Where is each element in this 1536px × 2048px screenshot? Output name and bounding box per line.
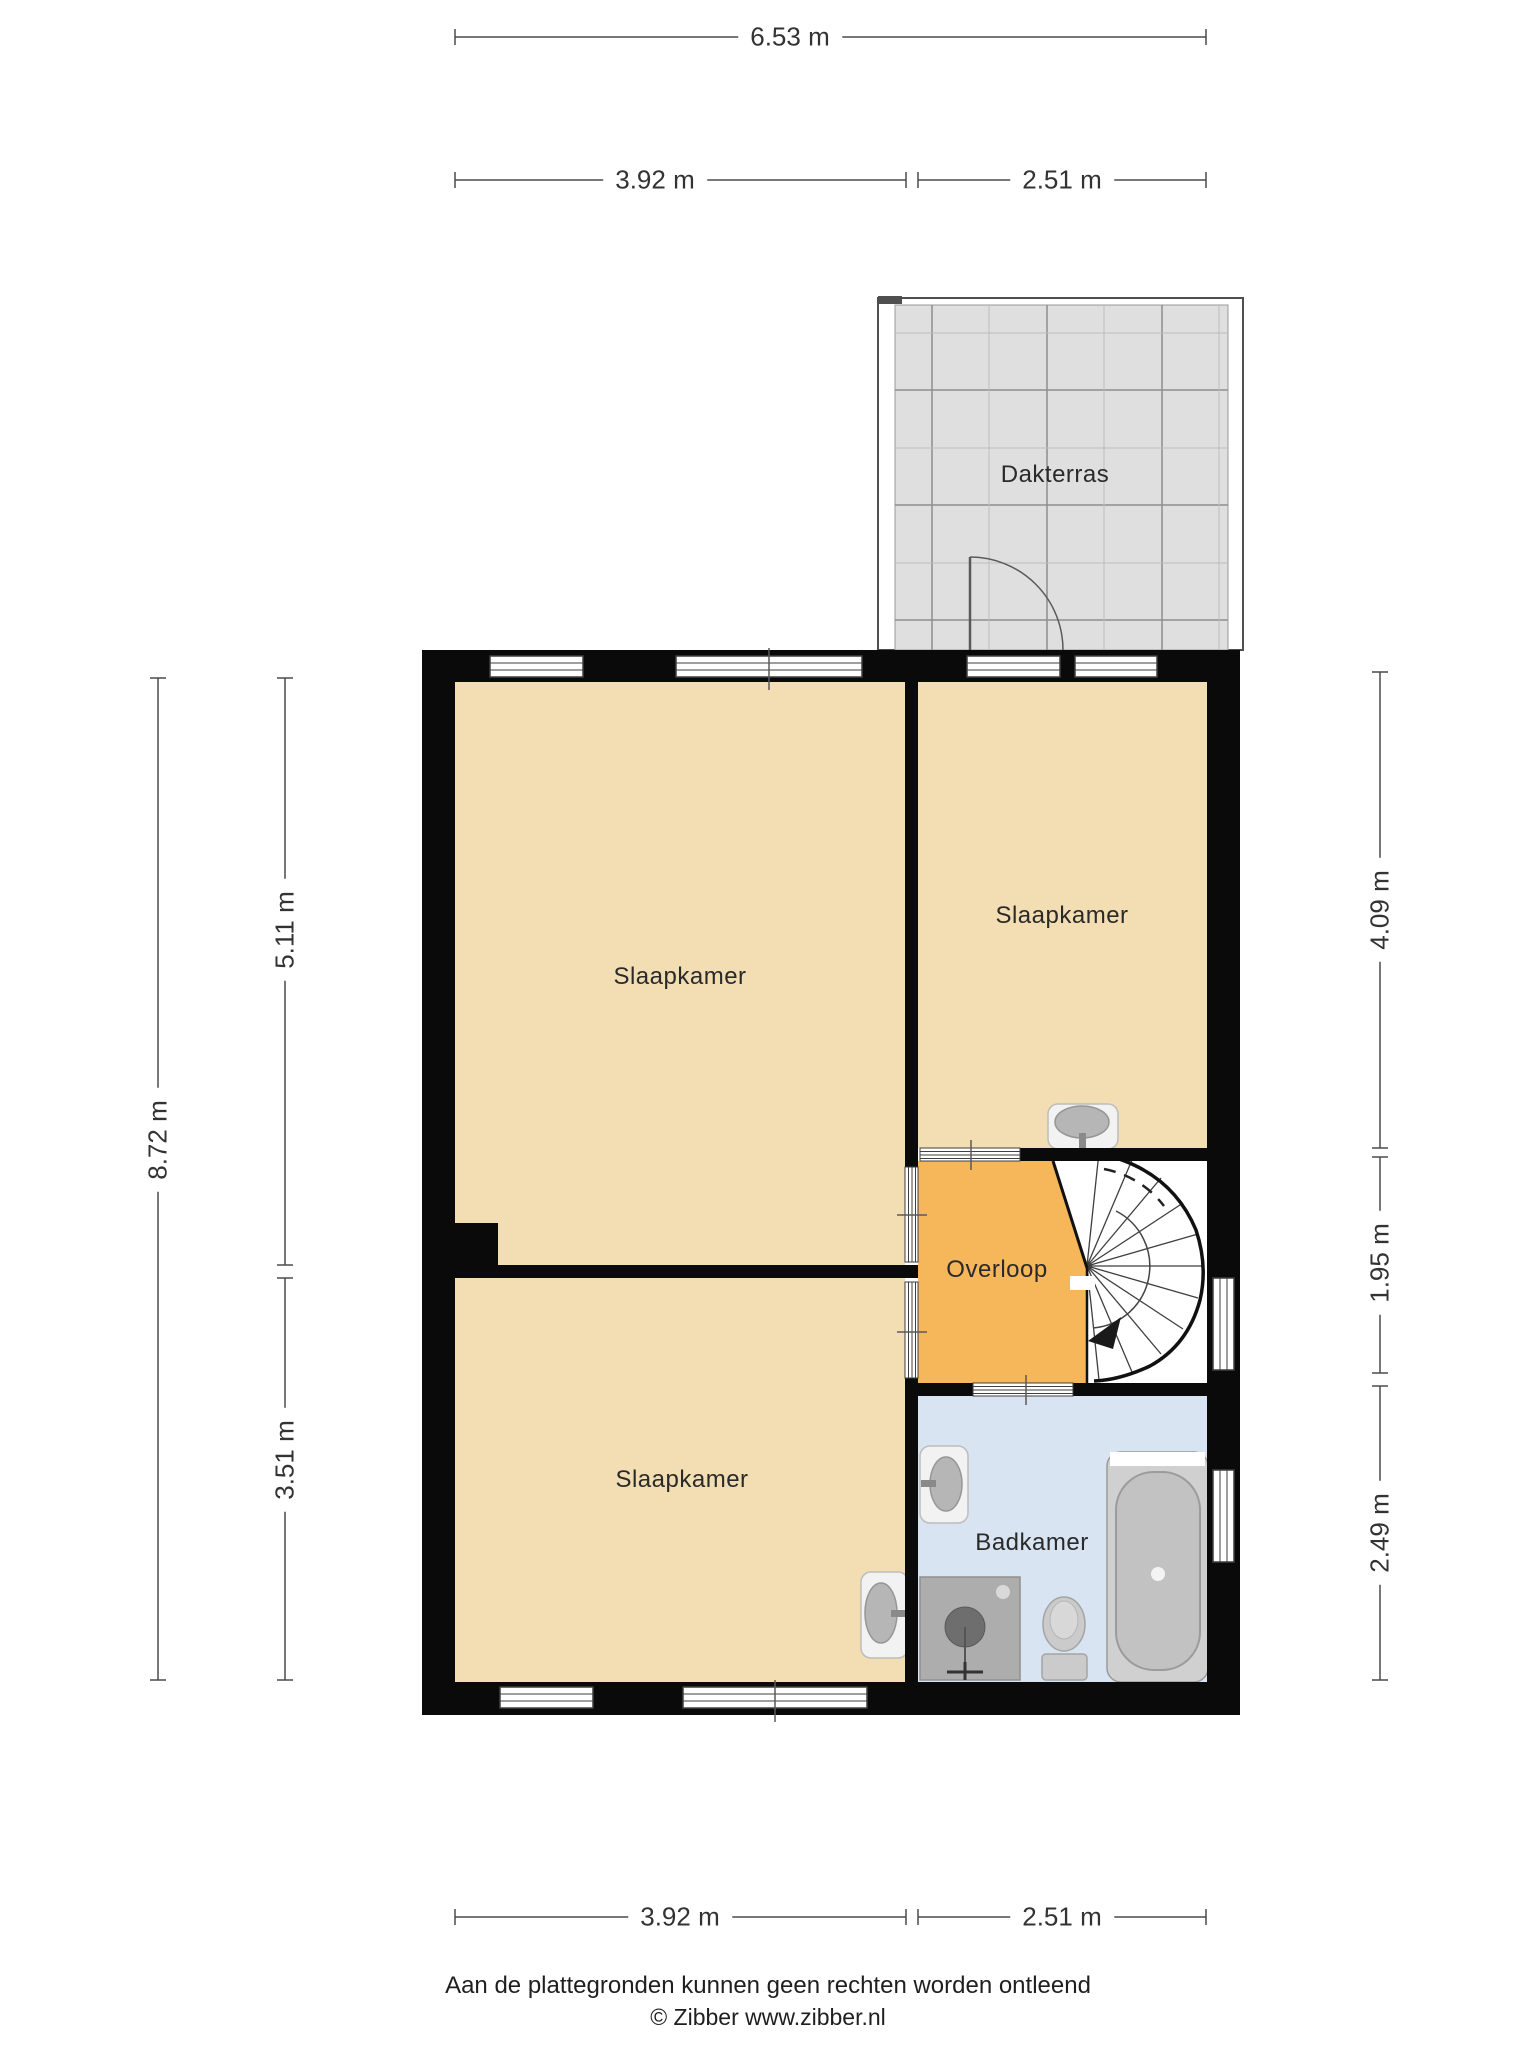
sink-bedroom-right: [1048, 1104, 1118, 1149]
room-label-overloop: Overloop: [946, 1256, 1047, 1284]
dim-bottom-right: 2.51 m: [1010, 1902, 1114, 1933]
wall-pillar: [455, 1223, 498, 1265]
toilet: [1042, 1597, 1087, 1680]
wall-badkamer-left: [905, 1396, 918, 1682]
room-floors: [455, 682, 1207, 1682]
wall-bedroom2-bottom: [1020, 1148, 1207, 1161]
window: [490, 656, 583, 677]
dim-top-right: 2.51 m: [1010, 165, 1114, 196]
dim-right-middle: 1.95 m: [1365, 1211, 1396, 1315]
wall-stub: [905, 1378, 918, 1397]
terrace-corner-stub: [878, 296, 902, 304]
floorplan-page: Dakterras Slaapkamer Slaapkamer Overloop…: [0, 0, 1536, 2048]
dim-left-upper: 5.11 m: [270, 879, 301, 981]
window: [1213, 1470, 1234, 1562]
wall-stub: [905, 1148, 918, 1167]
terrace-glass-door: [967, 656, 1060, 677]
dim-top-total: 6.53 m: [738, 22, 842, 53]
dim-right-lower: 2.49 m: [1365, 1481, 1396, 1585]
room-label-slaapkamer-2: Slaapkamer: [995, 902, 1128, 930]
dim-bottom-left: 3.92 m: [628, 1902, 732, 1933]
dim-right-upper: 4.09 m: [1365, 858, 1396, 962]
sink-badkamer: [920, 1446, 968, 1523]
window: [500, 1687, 593, 1708]
wall-divider-bedrooms-top: [905, 682, 918, 1148]
door-overloop-badkamer: [973, 1383, 1073, 1396]
stair-start-marker: [1070, 1276, 1095, 1290]
footer-disclaimer: Aan de plattegronden kunnen geen rechten…: [0, 1972, 1536, 2000]
dim-top-left: 3.92 m: [603, 165, 707, 196]
wall-overloop-bottom-left: [918, 1383, 973, 1396]
room-label-slaapkamer-1: Slaapkamer: [613, 963, 746, 991]
sink-bedroom-bottom: [861, 1572, 908, 1658]
room-label-slaapkamer-3: Slaapkamer: [615, 1466, 748, 1494]
window: [1075, 656, 1157, 677]
wall-divider-bedrooms-left: [455, 1265, 918, 1278]
floorplan-drawing: [0, 0, 1536, 2048]
window: [1213, 1278, 1234, 1370]
door-bedroom2-overloop: [920, 1148, 1020, 1161]
shower: [920, 1577, 1020, 1680]
bathtub: [1107, 1452, 1208, 1682]
wall-overloop-bottom-right: [1073, 1383, 1207, 1396]
wall-left: [422, 650, 455, 1715]
dim-left-total: 8.72 m: [143, 1088, 174, 1192]
dim-left-lower: 3.51 m: [270, 1408, 301, 1512]
room-label-badkamer: Badkamer: [975, 1529, 1088, 1557]
footer-credit: © Zibber www.zibber.nl: [0, 2004, 1536, 2031]
room-label-dakterras: Dakterras: [1001, 461, 1110, 489]
door-bedroom3-overloop: [905, 1282, 918, 1378]
